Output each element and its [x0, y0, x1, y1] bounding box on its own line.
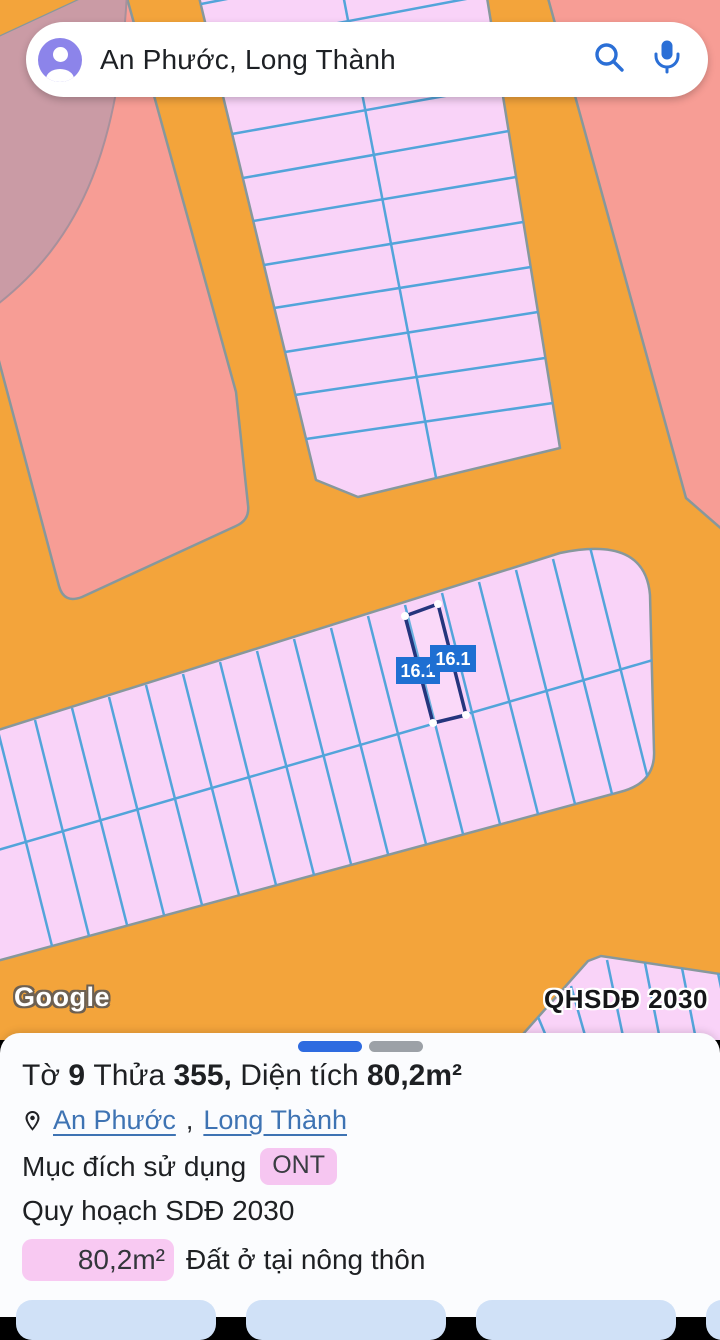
parcel-corner-handle[interactable] [462, 711, 470, 719]
parcel-corner-handle[interactable] [429, 719, 437, 727]
cadastral-map: 16.1 16.1 [0, 0, 720, 1040]
location-separator: , [186, 1105, 194, 1136]
parcel-corner-handle[interactable] [434, 600, 442, 608]
bottom-action-button-3[interactable] [476, 1300, 676, 1340]
carousel-dot-inactive[interactable] [369, 1041, 423, 1052]
carousel-pager [0, 1033, 720, 1052]
bottom-action-button-2[interactable] [246, 1300, 446, 1340]
land-use-badge: ONT [260, 1148, 337, 1185]
parcel-title: Tờ 9 Thửa 355, Diện tích 80,2m² [22, 1058, 720, 1094]
location-link-district[interactable]: Long Thành [203, 1105, 347, 1136]
account-avatar-icon[interactable] [38, 38, 82, 82]
search-bar[interactable]: An Phước, Long Thành [26, 22, 708, 97]
search-icon[interactable] [592, 40, 626, 79]
carousel-dot-active[interactable] [298, 1041, 362, 1052]
google-logo: Google [14, 982, 110, 1013]
action-bar [0, 1300, 720, 1340]
area-description: Đất ở tại nông thôn [186, 1244, 425, 1276]
location-row: An Phước, Long Thành [22, 1105, 720, 1136]
parcel-corner-handle[interactable] [401, 612, 409, 620]
bottom-action-button-1[interactable] [16, 1300, 216, 1340]
location-link-ward[interactable]: An Phước [53, 1105, 176, 1136]
area-row: 80,2m² Đất ở tại nông thôn [22, 1239, 720, 1281]
search-input[interactable]: An Phước, Long Thành [100, 44, 592, 76]
map-canvas[interactable]: 16.1 16.1 [0, 0, 720, 1040]
parcel-dimension-label: 16.1 [430, 645, 476, 672]
place-pin-icon [22, 1108, 43, 1134]
bottom-action-button-4[interactable] [706, 1300, 720, 1340]
planning-row: Quy hoạch SDĐ 2030 [22, 1195, 720, 1227]
land-use-row: Mục đích sử dụng ONT [22, 1148, 720, 1185]
microphone-icon[interactable] [652, 39, 682, 80]
area-badge: 80,2m² [22, 1239, 174, 1281]
qhsdd-2030-watermark: QHSDĐ 2030 [544, 984, 708, 1015]
bottom-sheet[interactable]: Tờ 9 Thửa 355, Diện tích 80,2m² An Phước… [0, 1033, 720, 1317]
land-use-label: Mục đích sử dụng [22, 1151, 246, 1183]
svg-text:16.1: 16.1 [435, 649, 470, 669]
